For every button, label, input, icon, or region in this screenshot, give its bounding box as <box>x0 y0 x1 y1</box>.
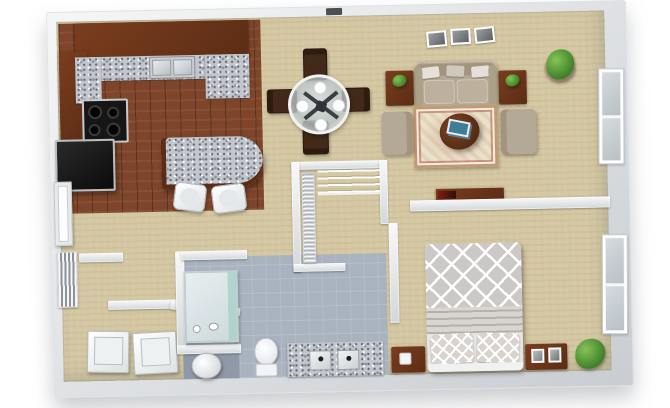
entry-door <box>54 182 73 246</box>
toilet-bowl <box>254 337 279 365</box>
sink-basin <box>173 59 192 75</box>
living-room-window <box>598 68 624 164</box>
wall-vent <box>326 8 342 15</box>
bedroom-window <box>602 234 628 334</box>
nightstand <box>391 346 426 373</box>
window-pane <box>606 286 624 331</box>
vanity-sink <box>337 350 359 370</box>
stool-seat <box>179 187 201 207</box>
closet-louver-door <box>301 173 316 263</box>
end-table <box>498 70 527 105</box>
sofa-pillow <box>471 65 490 78</box>
bed-pillow <box>477 332 520 363</box>
burner <box>88 105 102 119</box>
stove-cooktop <box>82 98 129 143</box>
place-setting <box>314 81 327 94</box>
sofa-pillow <box>421 66 440 79</box>
wall-art <box>450 28 471 45</box>
closet-wall <box>293 263 345 272</box>
sofa-seat-cushion <box>457 79 488 104</box>
burner <box>107 107 119 119</box>
dryer-lid <box>140 337 171 367</box>
utility-closet-louver-door <box>57 252 78 308</box>
window-pane <box>602 72 620 115</box>
place-setting <box>296 100 309 113</box>
kitchen-counter-right <box>205 54 250 99</box>
floor-plan-stage <box>0 0 670 408</box>
apartment-floor-plan <box>46 0 634 398</box>
toilet-tank <box>255 363 277 376</box>
breakfast-bar <box>161 136 264 190</box>
interior-wall <box>79 253 123 263</box>
armchair <box>381 111 413 155</box>
vanity-sink <box>309 350 331 370</box>
dryer <box>132 331 178 375</box>
nightstand-decor <box>399 353 411 365</box>
shower-stall <box>183 270 238 343</box>
place-setting <box>314 118 327 131</box>
bar-stool <box>172 181 207 213</box>
stool-seat <box>218 188 240 208</box>
tv-equipment <box>438 191 456 199</box>
sofa-arm <box>488 65 498 106</box>
nightstand <box>525 343 568 370</box>
bed-comforter <box>425 242 522 308</box>
bar-stool <box>210 182 247 214</box>
armchair <box>500 109 537 155</box>
bed-folded-blanket <box>426 306 523 334</box>
closet-wall <box>379 160 388 224</box>
bathroom-vanity <box>287 341 384 377</box>
bathroom-wall <box>181 250 247 260</box>
washer <box>87 331 130 374</box>
closet-wire-shelf <box>317 169 380 195</box>
photo-frame <box>548 347 561 362</box>
wall-art <box>474 26 496 44</box>
plant <box>505 74 519 86</box>
faucet <box>318 356 323 361</box>
burner <box>106 123 120 137</box>
photo-frame <box>531 349 544 363</box>
bed-pillow <box>430 332 474 365</box>
bed <box>425 242 524 372</box>
shower-drain <box>209 323 219 331</box>
toilet <box>253 337 280 378</box>
kitchen-counter-left <box>75 57 102 104</box>
sofa <box>413 61 498 110</box>
burner <box>88 124 100 136</box>
sofa-arm <box>413 66 423 107</box>
shower-fixture <box>193 325 201 333</box>
sofa-seat-cushion <box>424 80 455 105</box>
sofa-pillow <box>446 65 465 77</box>
washer-lid <box>94 337 123 365</box>
faucet <box>346 356 351 361</box>
wall-art <box>426 30 447 48</box>
window-pane <box>602 118 620 161</box>
plant <box>392 75 406 87</box>
place-setting <box>332 99 345 112</box>
sink-basin <box>152 60 171 76</box>
window-pane <box>606 238 624 283</box>
end-table <box>385 70 414 106</box>
kitchen-sink <box>149 56 195 79</box>
shower-glass <box>228 272 237 340</box>
